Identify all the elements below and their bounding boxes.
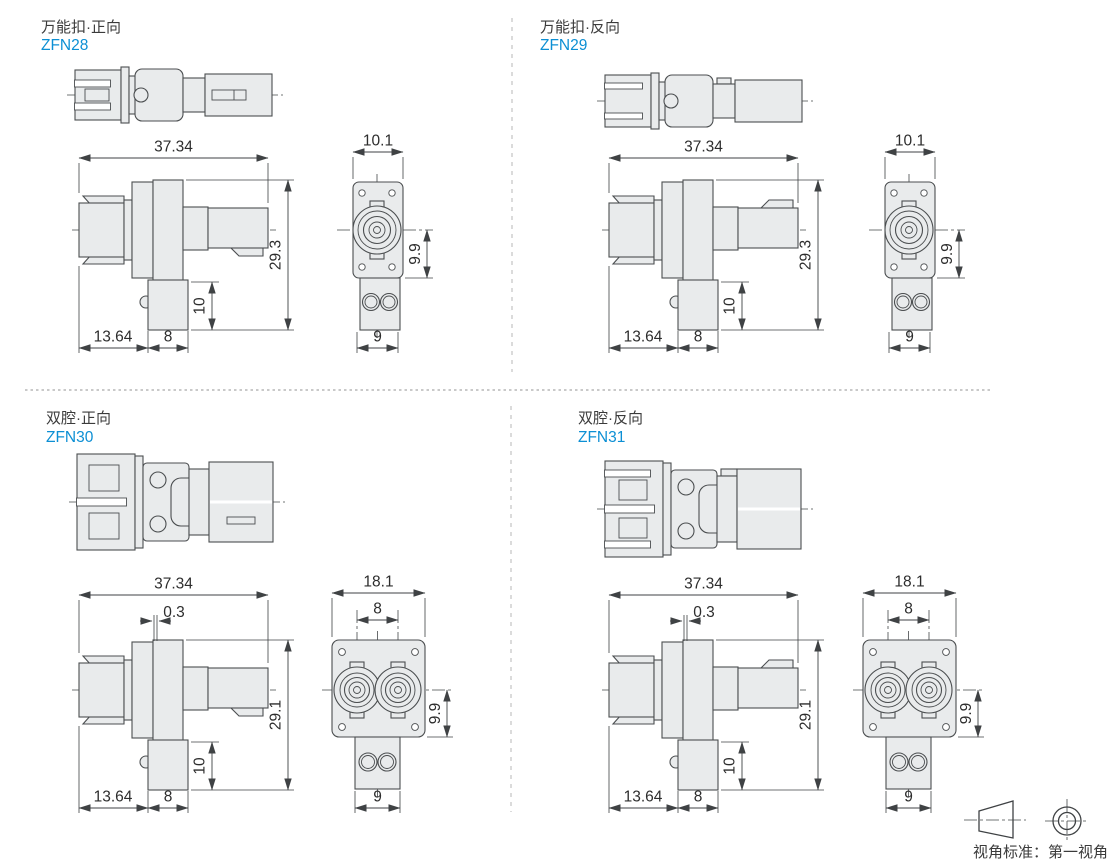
dim-leg-width: 8: [694, 329, 703, 346]
zfn29-drawing: 37.34 29.3 10 13.64 8 10.1: [597, 73, 965, 353]
view-standard-icons: [964, 799, 1089, 843]
dim-nose-length: 13.64: [624, 329, 663, 346]
dim-nose-length: 13.64: [94, 789, 133, 806]
zfn30-end-view: [332, 640, 425, 789]
dim-total-height: 29.3: [798, 240, 815, 270]
dim-boot-width: 9: [904, 789, 913, 806]
dim-total-width: 37.34: [154, 576, 193, 593]
catalog-page: 万能扣·正向 ZFN28 万能扣·反向 ZFN29 双腔·正向 ZFN30 双腔…: [0, 0, 1110, 865]
dim-total-width: 37.34: [684, 576, 723, 593]
dim-flange-width: 18.1: [894, 574, 924, 591]
dim-total-height: 29.1: [268, 700, 285, 730]
dim-boot-width: 9: [373, 789, 382, 806]
zfn31-drawing: 37.34 0.3 29.1 10 13.64 8: [597, 461, 984, 813]
dim-flange-offset: 0.3: [693, 604, 715, 621]
zfn31-front-view: [609, 640, 798, 790]
dim-leg-height: 10: [722, 297, 739, 315]
dim-boot-width: 9: [373, 329, 382, 346]
dim-center-to-bottom: 9.9: [958, 703, 975, 725]
dim-center-to-bottom: 9.9: [427, 703, 444, 725]
zfn29-top-view: [605, 73, 803, 129]
dim-flange-width: 18.1: [363, 574, 393, 591]
dim-total-width: 37.34: [684, 139, 723, 156]
zfn29-front-view: [609, 180, 798, 330]
dim-leg-width: 8: [694, 789, 703, 806]
zfn30-top-view: [77, 454, 274, 550]
technical-drawings: 37.34 29.3 10 13.64 8 10.1: [0, 0, 1110, 865]
zfn28-top-view: [75, 67, 273, 123]
dim-leg-height: 10: [722, 757, 739, 775]
dim-center-to-bottom: 9.9: [939, 243, 956, 265]
dim-center-to-bottom: 9.9: [407, 243, 424, 265]
dim-boot-width: 9: [905, 329, 914, 346]
dim-total-height: 29.1: [798, 700, 815, 730]
dim-total-width: 37.34: [154, 139, 193, 156]
dim-pitch: 8: [373, 601, 382, 618]
first-angle-frustum-icon: [979, 801, 1013, 838]
zfn29-end-view: [885, 182, 935, 330]
dim-flange-offset: 0.3: [163, 604, 185, 621]
dim-leg-width: 8: [164, 789, 173, 806]
dim-leg-width: 8: [164, 329, 173, 346]
zfn31-end-view: [863, 640, 956, 789]
first-angle-front-icon: [1045, 799, 1089, 843]
zfn31-top-view: [605, 461, 802, 557]
dim-nose-length: 13.64: [624, 789, 663, 806]
dim-nose-length: 13.64: [94, 329, 133, 346]
zfn28-end-view: [353, 182, 403, 330]
zfn28-front-view: [79, 180, 268, 330]
dim-leg-height: 10: [192, 757, 209, 775]
dim-flange-width: 10.1: [895, 133, 925, 150]
dim-leg-height: 10: [192, 297, 209, 315]
zfn30-drawing: 37.34 0.3 29.1 10 13.64 8: [69, 454, 453, 813]
dim-flange-width: 10.1: [363, 133, 393, 150]
dim-total-height: 29.3: [268, 240, 285, 270]
zfn28-drawing: 37.34 29.3 10 13.64 8 10.1: [67, 67, 433, 353]
dim-pitch: 8: [904, 601, 913, 618]
zfn30-front-view: [79, 640, 268, 790]
